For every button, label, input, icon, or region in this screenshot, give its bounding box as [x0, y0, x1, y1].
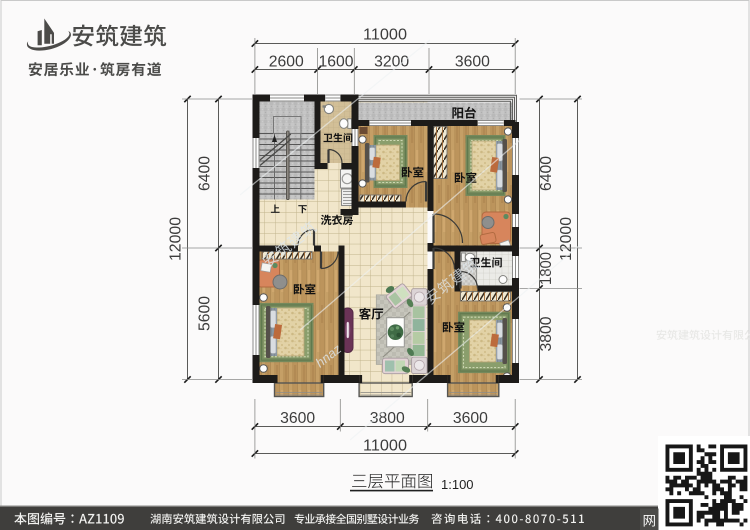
- svg-text:3600: 3600: [280, 410, 315, 427]
- svg-text:1:100: 1:100: [441, 477, 474, 492]
- svg-text:1600: 1600: [319, 54, 354, 71]
- svg-text:3600: 3600: [453, 410, 488, 427]
- svg-text:12000: 12000: [558, 217, 575, 261]
- svg-text:3600: 3600: [455, 54, 490, 71]
- svg-text:5600: 5600: [197, 296, 214, 331]
- svg-text:6400: 6400: [197, 156, 214, 191]
- svg-text:12000: 12000: [168, 217, 185, 261]
- svg-text:11000: 11000: [363, 438, 407, 455]
- svg-text:2600: 2600: [269, 54, 304, 71]
- svg-text:11000: 11000: [363, 27, 407, 44]
- svg-text:6400: 6400: [538, 156, 555, 191]
- svg-text:3800: 3800: [538, 316, 555, 351]
